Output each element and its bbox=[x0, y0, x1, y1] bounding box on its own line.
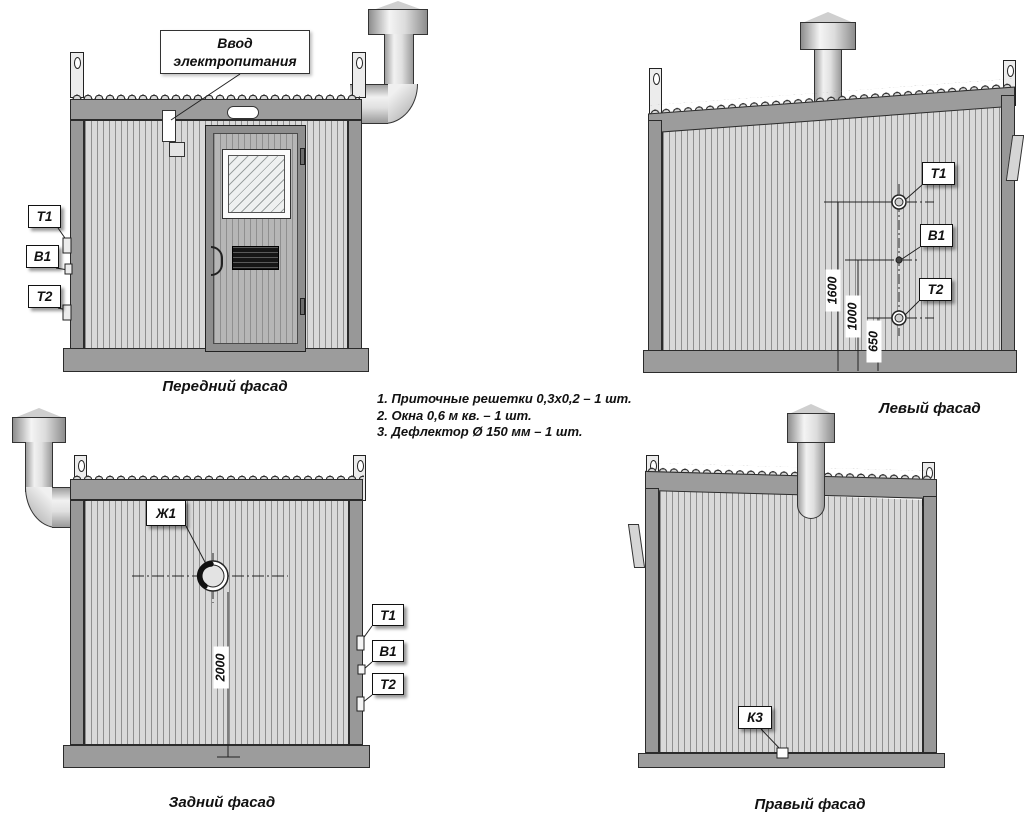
front-roof-corrugation bbox=[72, 90, 360, 99]
right-wall bbox=[659, 490, 923, 753]
right-facade-caption: Правый фасад bbox=[725, 796, 895, 813]
bracket-hole-icon bbox=[653, 73, 660, 85]
legend-notes: 1. Приточные решетки 0,3х0,2 – 1 шт. 2. … bbox=[377, 391, 632, 441]
left-corner-post-left bbox=[648, 120, 662, 352]
right-base-plinth bbox=[638, 753, 945, 768]
power-entry-device bbox=[162, 110, 176, 142]
front-tag-t1: Т1 bbox=[28, 205, 61, 228]
front-deflector-pipe bbox=[384, 34, 414, 90]
dimension-1000: 1000 bbox=[846, 296, 861, 338]
left-corner-post-right bbox=[1001, 95, 1015, 352]
callout-line2: электропитания bbox=[173, 52, 296, 70]
dimension-1600: 1600 bbox=[826, 270, 841, 312]
left-tag-t1: Т1 bbox=[922, 162, 955, 185]
drawing-canvas: Ввод электропитания Т1 В1 Т2 Передний фа… bbox=[0, 0, 1024, 839]
power-entry-junction bbox=[169, 142, 185, 157]
door-hinge-top bbox=[300, 148, 305, 165]
rear-base-plinth bbox=[63, 745, 370, 768]
right-deflector-cap bbox=[787, 413, 835, 443]
front-deflector-elbow bbox=[384, 84, 418, 124]
bracket-hole-icon bbox=[74, 57, 81, 69]
front-facade-caption: Передний фасад bbox=[140, 378, 310, 395]
door-window-glass bbox=[228, 155, 285, 213]
door-top-vent-icon bbox=[227, 106, 259, 119]
note-line-1: 1. Приточные решетки 0,3х0,2 – 1 шт. bbox=[377, 391, 632, 408]
right-tag-k3: К3 bbox=[738, 706, 772, 729]
rear-corner-post-right bbox=[349, 500, 363, 745]
rear-tag-b1: В1 bbox=[372, 640, 404, 662]
front-deflector-cap bbox=[368, 9, 428, 35]
dimension-2000: 2000 bbox=[214, 647, 229, 689]
front-corner-post-right bbox=[348, 120, 362, 349]
rear-tag-t2: Т2 bbox=[372, 673, 404, 695]
right-deflector-pipe bbox=[797, 443, 825, 519]
right-side-bracket bbox=[628, 524, 645, 568]
bracket-hole-icon bbox=[1007, 65, 1014, 77]
door-louver-vent bbox=[232, 246, 279, 270]
rear-deflector-pipe bbox=[25, 442, 53, 492]
rear-tag-zh1: Ж1 bbox=[146, 500, 186, 526]
rear-wall bbox=[84, 500, 349, 745]
callout-line1: Ввод bbox=[217, 34, 252, 52]
note-line-2: 2. Окна 0,6 м кв. – 1 шт. bbox=[377, 408, 632, 425]
left-deflector-cap bbox=[800, 22, 856, 50]
rear-tag-t1: Т1 bbox=[372, 604, 404, 626]
rear-corner-post-left bbox=[70, 500, 84, 745]
bracket-hole-icon bbox=[356, 57, 363, 69]
rear-deflector-cap bbox=[12, 417, 66, 443]
front-corner-post-left bbox=[70, 120, 84, 349]
door-hinge-bottom bbox=[300, 298, 305, 315]
front-tag-b1: В1 bbox=[26, 245, 59, 268]
front-roof-fascia bbox=[70, 99, 362, 120]
left-facade-caption: Левый фасад bbox=[845, 400, 1015, 417]
power-entry-callout: Ввод электропитания bbox=[160, 30, 310, 74]
left-tag-b1: В1 bbox=[920, 224, 953, 247]
right-corner-post-left bbox=[645, 488, 659, 753]
left-base-plinth bbox=[643, 350, 1017, 373]
dimension-650: 650 bbox=[867, 321, 882, 363]
front-tag-t2: Т2 bbox=[28, 285, 61, 308]
rear-facade-caption: Задний фасад bbox=[137, 794, 307, 811]
left-tag-t2: Т2 bbox=[919, 278, 952, 301]
note-line-3: 3. Дефлектор Ø 150 мм – 1 шт. bbox=[377, 424, 632, 441]
right-corner-post-right bbox=[923, 496, 937, 753]
rear-roof-fascia bbox=[70, 479, 363, 500]
